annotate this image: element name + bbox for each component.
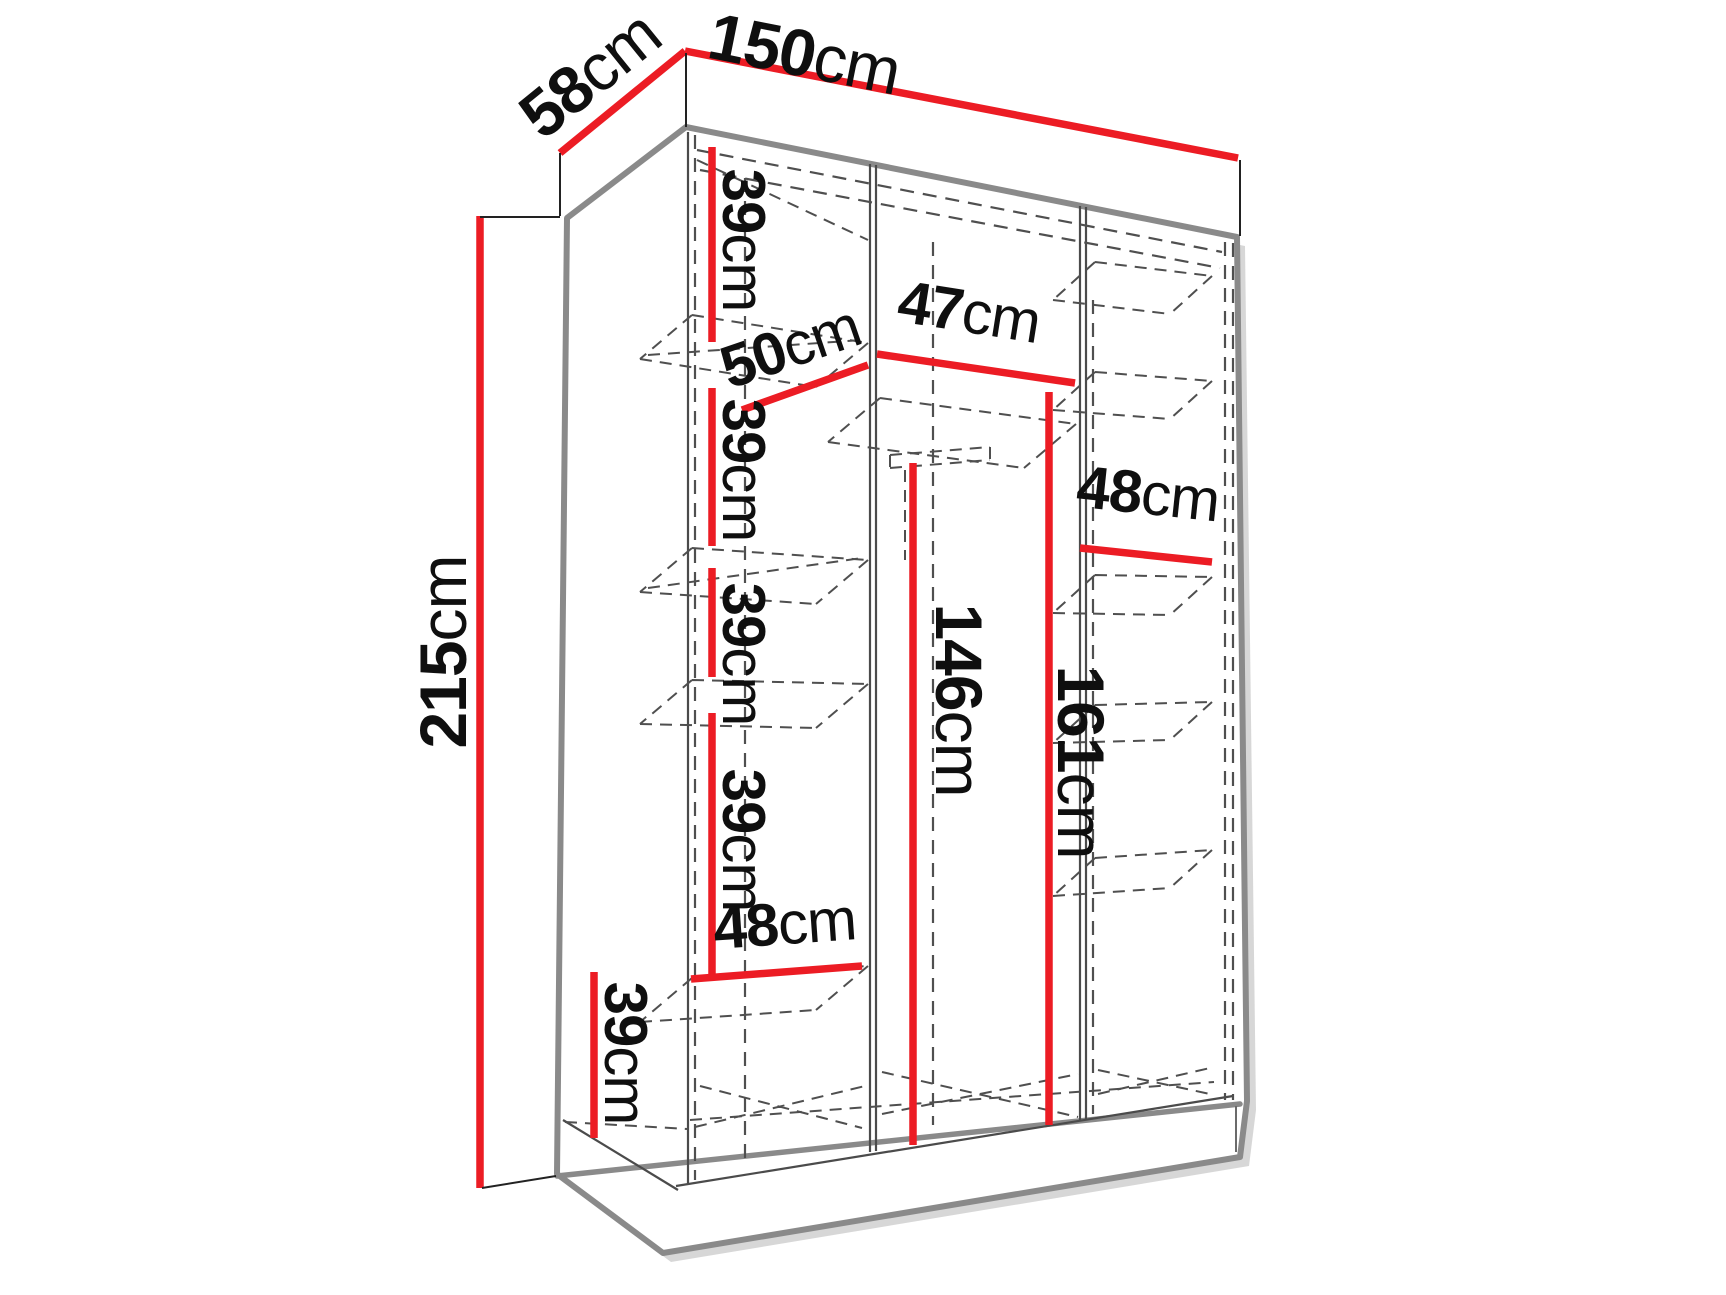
dim-label-215: 215cm — [406, 555, 480, 748]
dim-label-161: 161cm — [1044, 665, 1118, 858]
dim-label-39-1: 39cm — [710, 169, 777, 312]
dim-label-150: 150cm — [703, 0, 907, 109]
dim-label-48-bottom: 48cm — [711, 885, 858, 962]
dim-label-39-4: 39cm — [710, 769, 777, 912]
dim-label-39-3: 39cm — [710, 583, 777, 726]
wardrobe-dimension-diagram: 150cm 58cm 215cm 39cm 50cm 47cm 39cm 48c… — [0, 0, 1726, 1295]
dim-label-39-5: 39cm — [592, 982, 659, 1125]
diagram-canvas: 150cm 58cm 215cm 39cm 50cm 47cm 39cm 48c… — [0, 0, 1726, 1295]
tick-215-bottom — [482, 1176, 556, 1188]
dim-label-146: 146cm — [922, 603, 996, 796]
dim-label-39-2: 39cm — [710, 399, 777, 542]
